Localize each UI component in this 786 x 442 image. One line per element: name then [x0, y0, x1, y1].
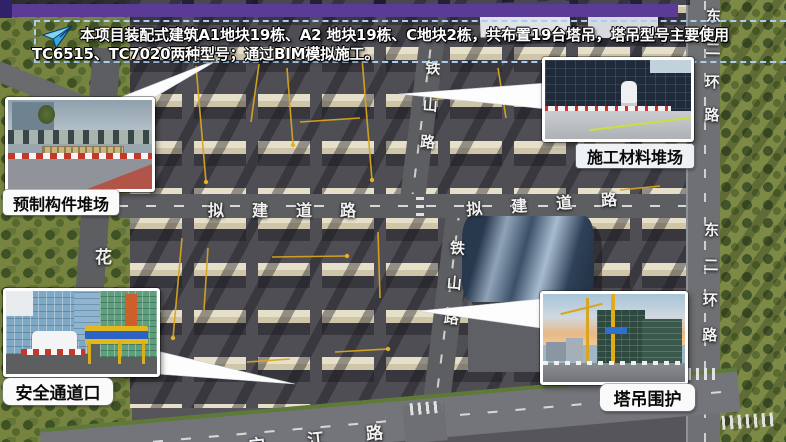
art — [621, 81, 637, 109]
banner-line-2: TC6515、TC7020两种型号；通过BIM模拟施工。 — [32, 43, 379, 64]
art — [566, 338, 583, 361]
material-yard-photo — [542, 57, 694, 142]
precast-yard-label: 预制构件堆场 — [3, 190, 119, 215]
bim-site-overview: 铁山路 铁山路 拟建道路 拟建道路 东二环路 东二环路 宁江路 花 冲 本项目装… — [0, 0, 786, 442]
material-yard-label: 施工材料堆场 — [576, 144, 694, 168]
art — [546, 342, 566, 361]
art — [142, 342, 145, 364]
crosswalk-mid-intersection — [416, 196, 424, 216]
safety-passage-label-text: 安全通道口 — [16, 379, 101, 404]
safety-passage-label: 安全通道口 — [3, 378, 113, 405]
art — [605, 327, 626, 334]
art — [8, 130, 152, 144]
art — [38, 105, 55, 124]
art — [118, 342, 121, 364]
top-purple-cap — [0, 0, 12, 18]
crane-enclosure-label-text: 塔吊围护 — [614, 385, 682, 410]
safety-passage-photo — [3, 288, 160, 377]
blue-roof-building — [462, 216, 594, 302]
banner-line-1: 本项目装配式建筑A1地块19栋、A2 地块19栋、C地块2栋，共布置19台塔吊，… — [80, 24, 729, 45]
material-yard-label-text: 施工材料堆场 — [587, 144, 683, 168]
crane-enclosure-label: 塔吊围护 — [600, 384, 695, 411]
art — [6, 291, 33, 316]
crosswalk-ring-north — [688, 368, 716, 380]
top-purple-bar — [0, 4, 678, 17]
precast-yard-photo — [5, 97, 155, 192]
art — [85, 326, 148, 344]
art — [642, 319, 682, 365]
road-label-ring-south: 东二环路 — [699, 222, 722, 362]
art — [32, 331, 77, 350]
precast-yard-label-text: 预制构件堆场 — [13, 191, 109, 215]
art — [21, 349, 84, 355]
art — [543, 363, 685, 382]
road-label-proposed-west: 拟建道路 — [208, 197, 384, 221]
road-label-hua: 花 — [95, 243, 112, 268]
art — [597, 310, 645, 365]
art — [650, 60, 691, 73]
crane-enclosure-photo — [540, 291, 688, 385]
art — [88, 342, 91, 364]
art — [543, 361, 685, 365]
